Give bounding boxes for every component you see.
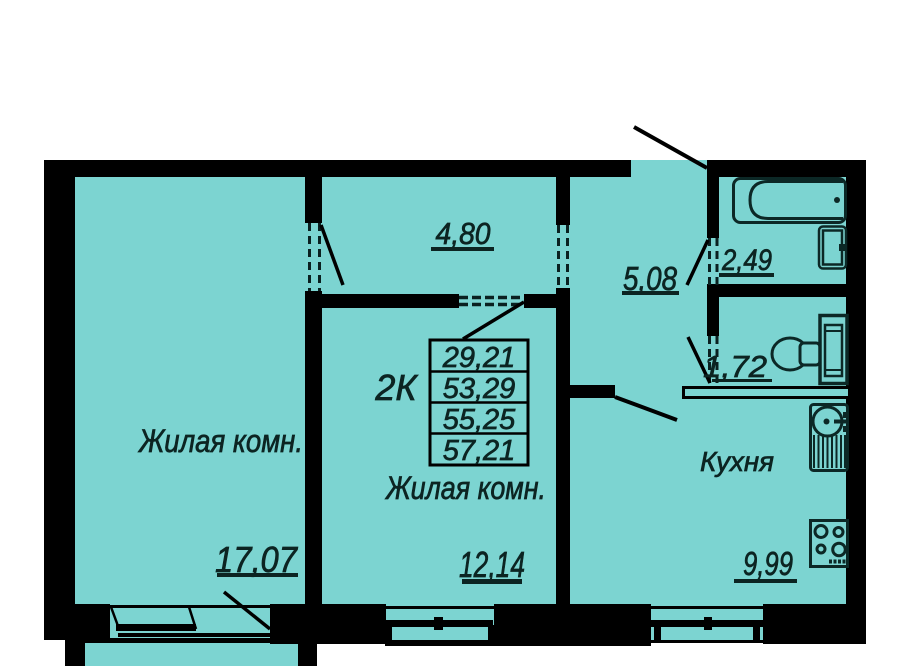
svg-text:Кухня: Кухня xyxy=(700,446,774,477)
svg-text:55,25: 55,25 xyxy=(443,404,516,436)
svg-text:2К: 2К xyxy=(374,367,418,408)
svg-text:Жилая комн.: Жилая комн. xyxy=(384,470,546,506)
svg-text:1,72: 1,72 xyxy=(703,349,767,384)
svg-text:53,29: 53,29 xyxy=(443,373,516,405)
svg-text:2,49: 2,49 xyxy=(721,244,772,277)
svg-text:29,21: 29,21 xyxy=(442,342,516,374)
svg-text:4,80: 4,80 xyxy=(436,216,491,251)
svg-text:12,14: 12,14 xyxy=(459,544,525,585)
svg-text:Жилая комн.: Жилая комн. xyxy=(137,423,303,459)
svg-text:9,99: 9,99 xyxy=(743,545,793,582)
svg-text:57,21: 57,21 xyxy=(443,435,516,467)
